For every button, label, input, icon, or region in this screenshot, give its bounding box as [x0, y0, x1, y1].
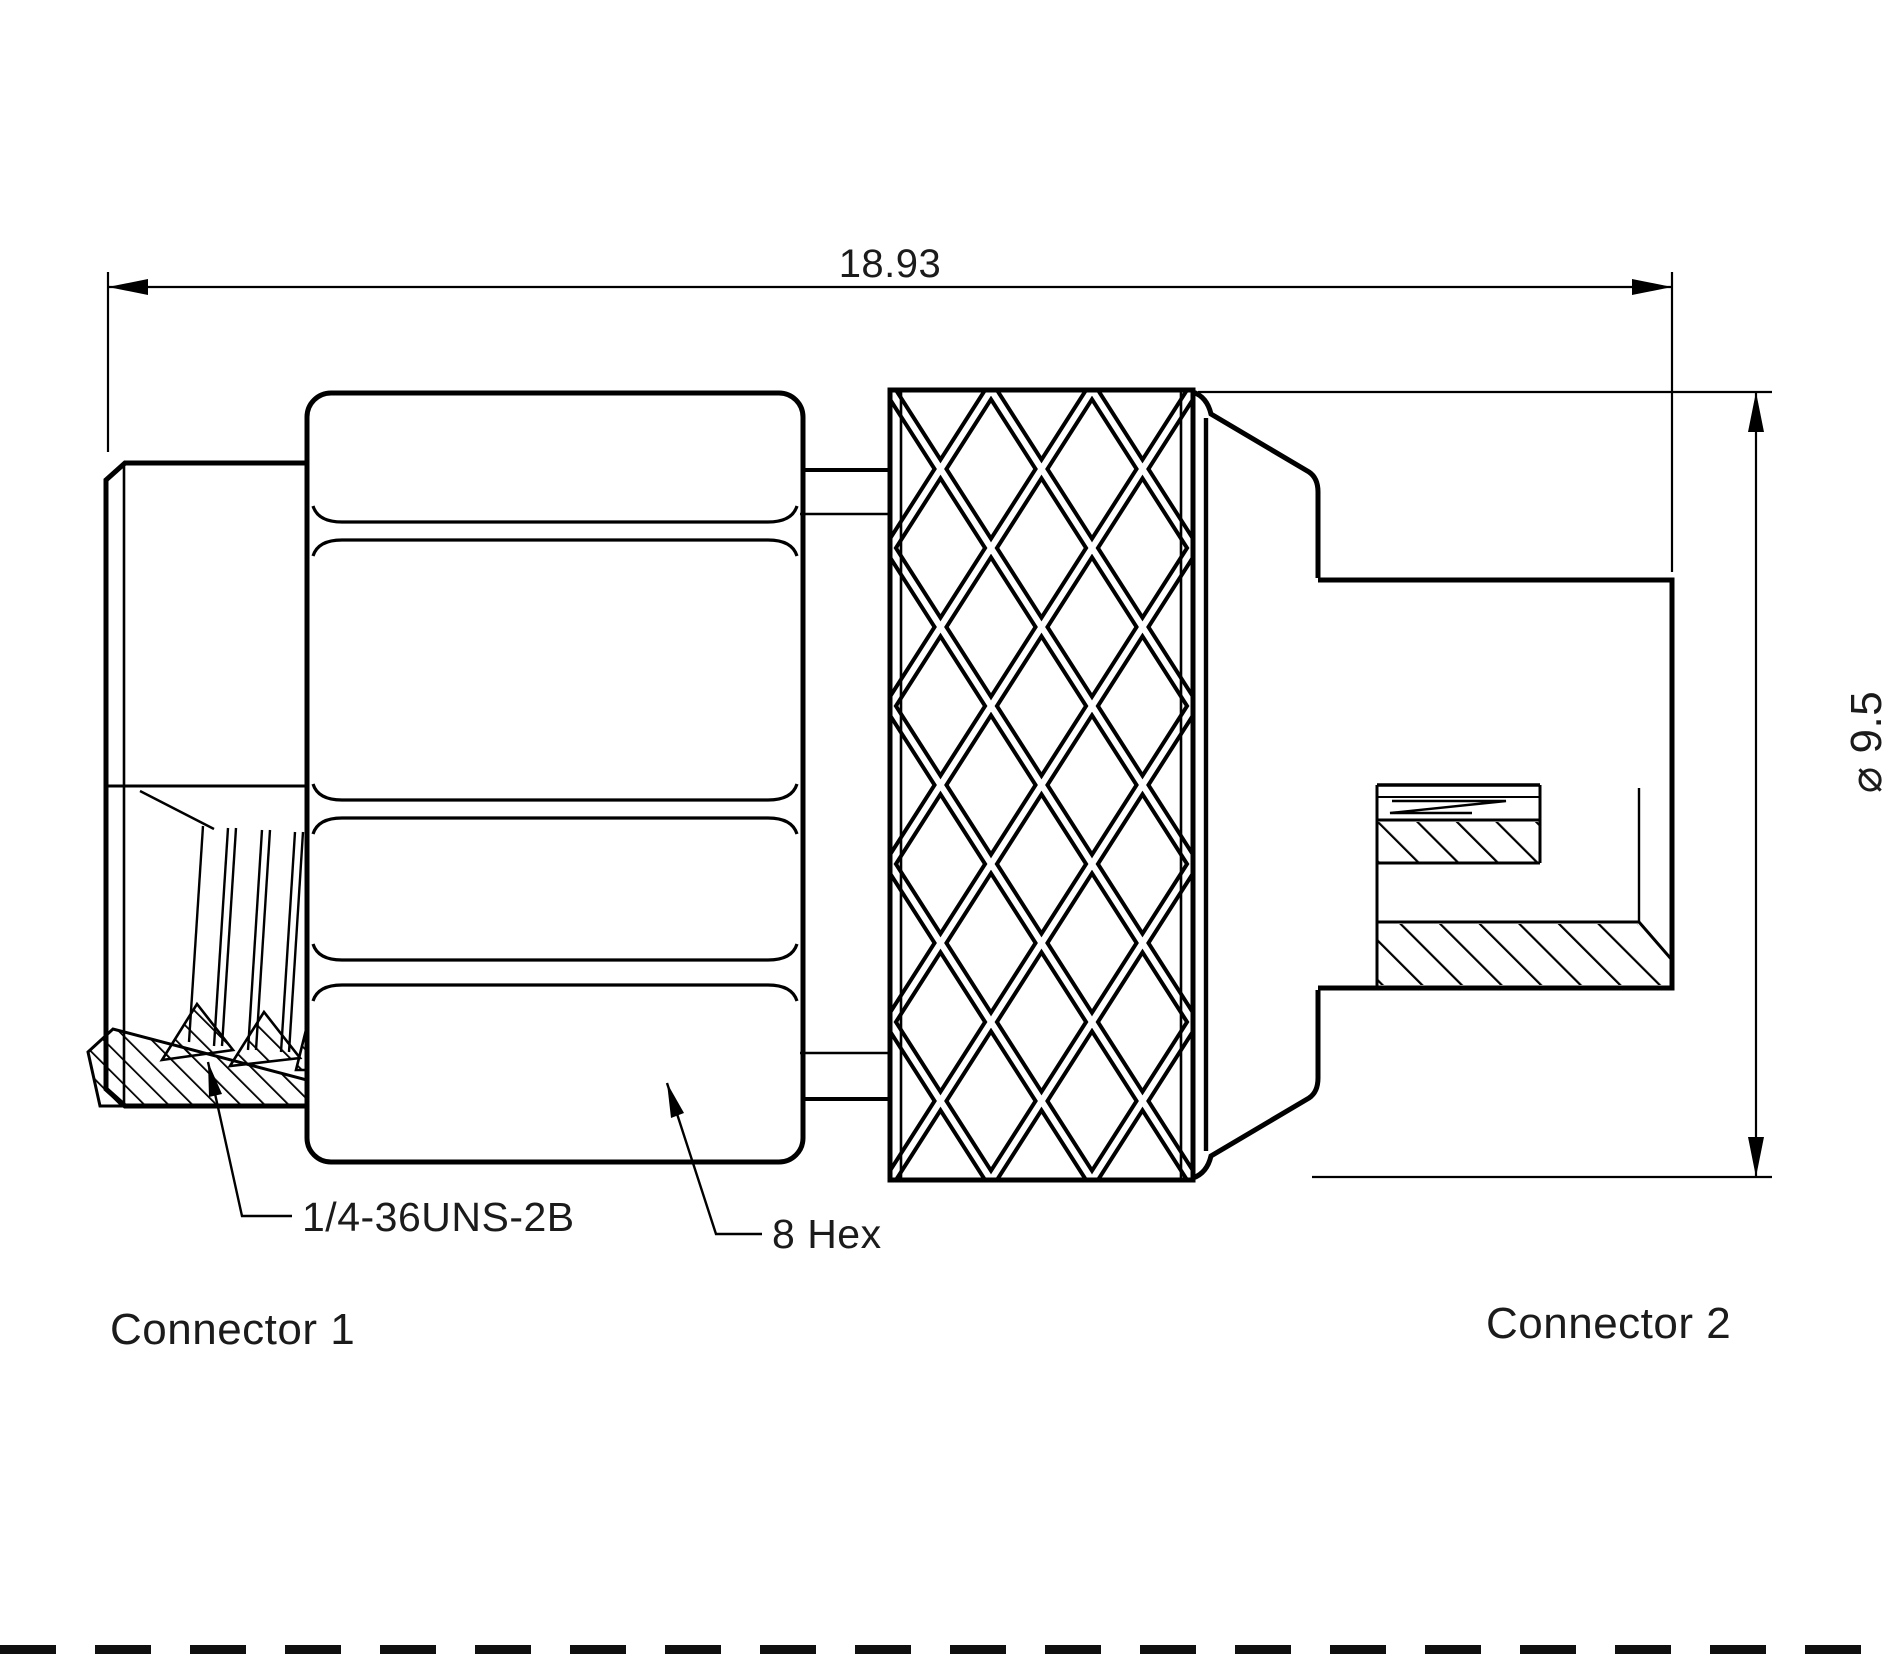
neck: [800, 470, 890, 1099]
technical-drawing-page: 18.93 ⌀ 9.5 1/4-36UNS-2B 8 Hex Connector…: [0, 0, 1892, 1654]
dim-arrow-right: [1632, 279, 1672, 295]
hex-body: [307, 393, 803, 1162]
dim-arrow-left: [108, 279, 148, 295]
dim-arrow-top: [1748, 392, 1764, 432]
dim-arrow-bottom: [1748, 1137, 1764, 1177]
connector1-label: Connector 1: [110, 1305, 355, 1354]
connector-drawing: 18.93 ⌀ 9.5 1/4-36UNS-2B 8 Hex Connector…: [0, 0, 1892, 1654]
hex-size-label: 8 Hex: [772, 1211, 882, 1257]
knurled-ring: [890, 390, 1193, 1180]
coupling-nut-barrel: [106, 463, 307, 1106]
dimension-diameter: ⌀ 9.5: [1198, 392, 1891, 1177]
internal-contact-section: [1377, 785, 1672, 988]
dim-diameter-value: ⌀ 9.5: [1842, 691, 1891, 793]
dim-length-value: 18.93: [839, 242, 942, 286]
thread-spec-label: 1/4-36UNS-2B: [302, 1194, 575, 1240]
bottom-dashed-strip: [0, 1645, 1892, 1654]
thread-section: [88, 791, 307, 1106]
connector2-label: Connector 2: [1486, 1299, 1731, 1348]
